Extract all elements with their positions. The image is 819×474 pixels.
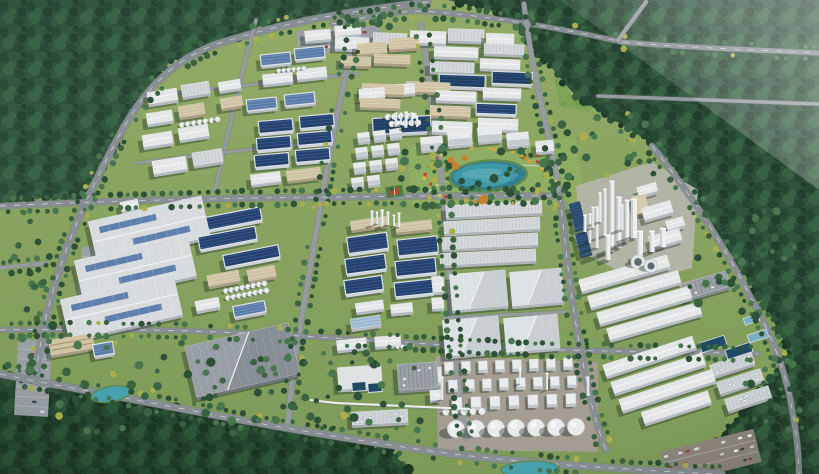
industrial-park-render xyxy=(0,0,819,474)
industrial-park-aerial-image: aerial-rendering-industrial-park-master-… xyxy=(0,0,819,474)
vignette-overlay xyxy=(0,0,819,474)
atmosphere-layer xyxy=(0,0,819,474)
